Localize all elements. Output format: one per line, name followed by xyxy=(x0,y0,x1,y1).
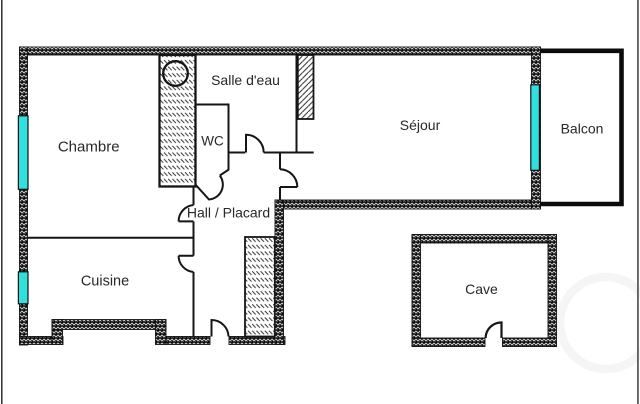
svg-text:Cuisine: Cuisine xyxy=(81,274,129,290)
svg-text:Cave: Cave xyxy=(465,281,498,297)
svg-text:Chambre: Chambre xyxy=(58,139,120,156)
svg-text:Hall / Placard: Hall / Placard xyxy=(187,205,270,221)
svg-text:Salle d'eau: Salle d'eau xyxy=(211,72,280,88)
svg-text:Balcon: Balcon xyxy=(561,121,604,137)
svg-text:Séjour: Séjour xyxy=(400,117,441,133)
svg-text:WC: WC xyxy=(201,134,224,149)
